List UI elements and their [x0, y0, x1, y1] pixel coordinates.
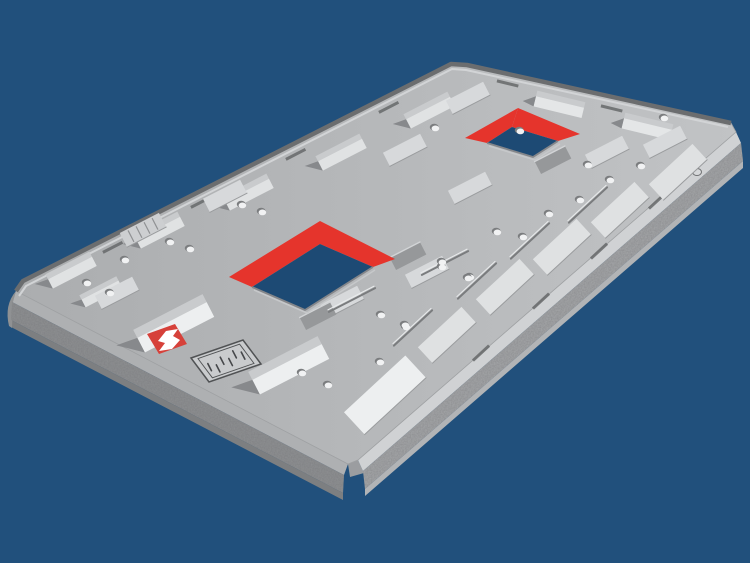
- plate-3d-render: 3D rendering of a grey steel wear plate …: [0, 0, 750, 563]
- render-canvas: 3D rendering of a grey steel wear plate …: [0, 0, 750, 563]
